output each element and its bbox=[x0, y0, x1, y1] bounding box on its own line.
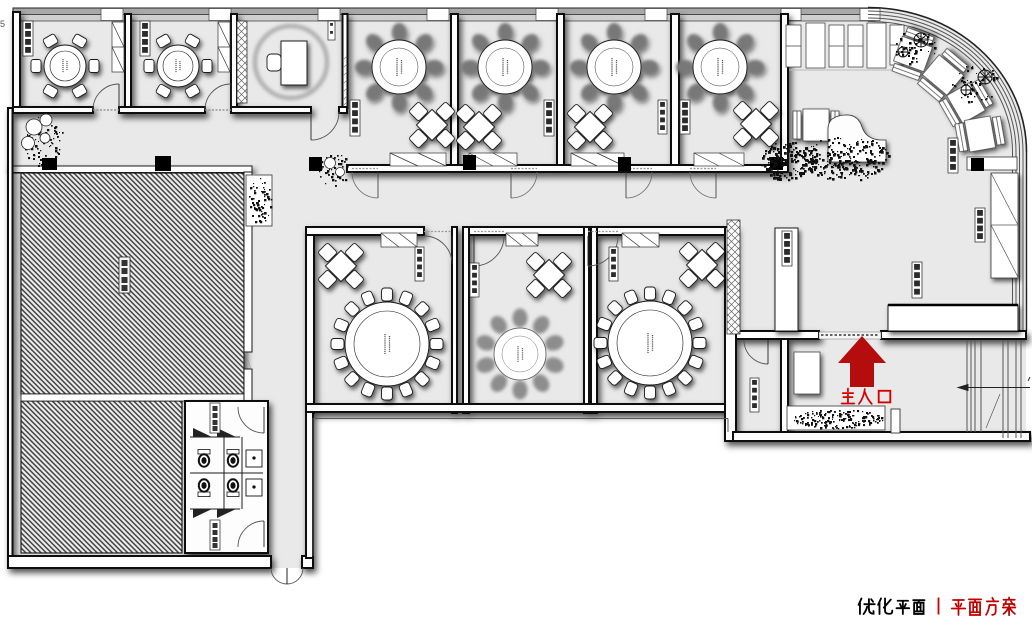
svg-text:5: 5 bbox=[0, 19, 5, 29]
